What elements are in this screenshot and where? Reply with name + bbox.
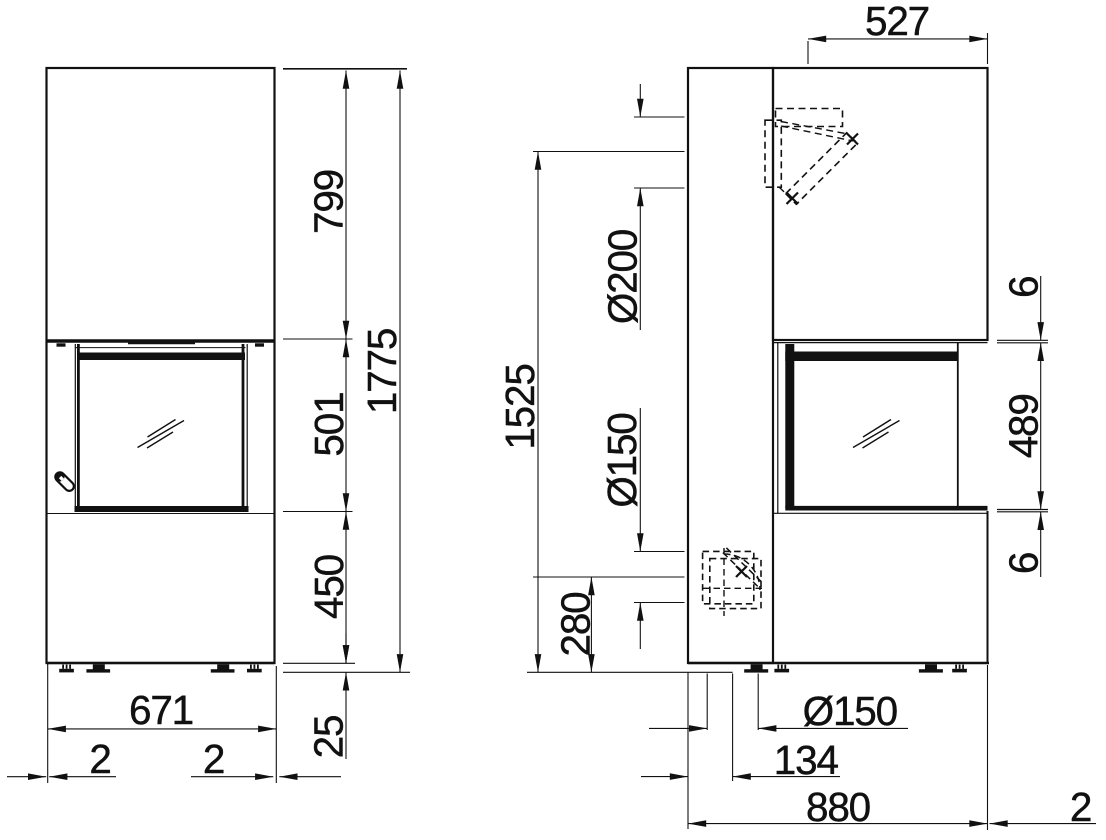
svg-text:2: 2 [89,736,110,782]
svg-text:450: 450 [306,555,352,619]
svg-text:Ø150: Ø150 [803,688,897,734]
svg-text:671: 671 [129,687,193,733]
svg-text:799: 799 [305,170,351,234]
svg-text:Ø150: Ø150 [599,413,645,507]
svg-text:1525: 1525 [497,364,543,449]
svg-text:Ø200: Ø200 [599,230,645,324]
svg-text:25: 25 [305,716,351,759]
svg-text:2: 2 [1070,784,1091,830]
svg-text:280: 280 [552,593,598,657]
svg-text:6: 6 [1000,553,1046,574]
svg-text:880: 880 [806,784,870,830]
svg-text:1775: 1775 [359,329,405,414]
svg-text:501: 501 [306,393,352,457]
svg-text:489: 489 [1000,394,1046,458]
svg-text:2: 2 [203,736,224,782]
svg-text:134: 134 [774,737,839,783]
svg-text:6: 6 [1000,277,1046,298]
svg-text:527: 527 [865,0,929,44]
